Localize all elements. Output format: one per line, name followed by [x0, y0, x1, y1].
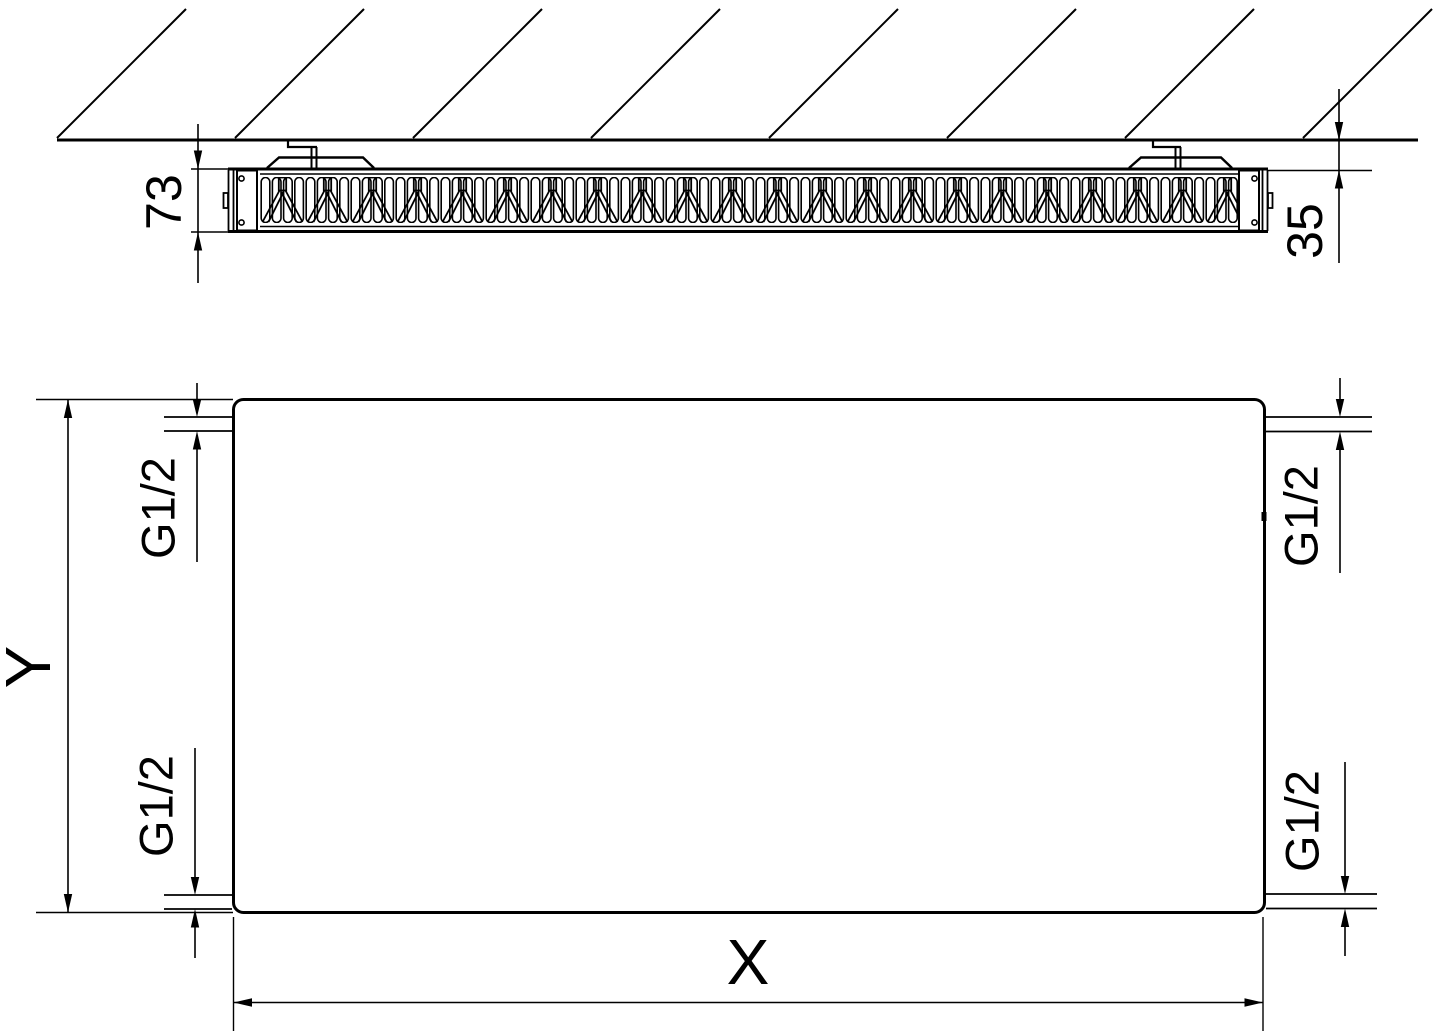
- wall-hatching: [57, 9, 1432, 138]
- dimension-height-y: Y: [0, 400, 233, 913]
- connection-dim-bottom-right: G1/2: [1276, 762, 1350, 956]
- convector-fins: [260, 177, 1238, 223]
- dimension-depth-73: 73: [136, 124, 246, 283]
- connection-dim-top-right: G1/2: [1275, 378, 1345, 573]
- radiator-technical-drawing: 73 35: [0, 0, 1445, 1035]
- dim-label-wall-gap: 35: [1277, 203, 1333, 259]
- dim-label-height: Y: [0, 646, 64, 689]
- connection-dim-top-left: G1/2: [132, 383, 202, 562]
- connection-dim-bottom-left: G1/2: [130, 748, 200, 958]
- thread-label-bottom-right: G1/2: [1276, 770, 1329, 872]
- dimension-wall-gap-35: 35: [1267, 89, 1372, 263]
- thread-label-top-left: G1/2: [132, 457, 185, 559]
- radiator-top-view: 73 35: [57, 9, 1432, 283]
- mounting-bracket-left: [267, 140, 374, 168]
- end-cap-right: [1239, 170, 1273, 231]
- air-vent-mark: [1262, 512, 1267, 521]
- dim-label-width: X: [727, 926, 770, 998]
- thread-label-bottom-left: G1/2: [130, 755, 183, 857]
- radiator-front-view: G1/2 G1/2 G1/2 G1/2: [0, 378, 1377, 1031]
- end-cap-left: [224, 170, 258, 231]
- radiator-body-section: [224, 169, 1273, 232]
- mounting-bracket-right: [1129, 140, 1232, 168]
- dim-label-depth: 73: [136, 174, 192, 230]
- radiator-panel: [234, 400, 1265, 913]
- dimension-width-x: X: [234, 917, 1264, 1031]
- thread-label-top-right: G1/2: [1275, 465, 1328, 567]
